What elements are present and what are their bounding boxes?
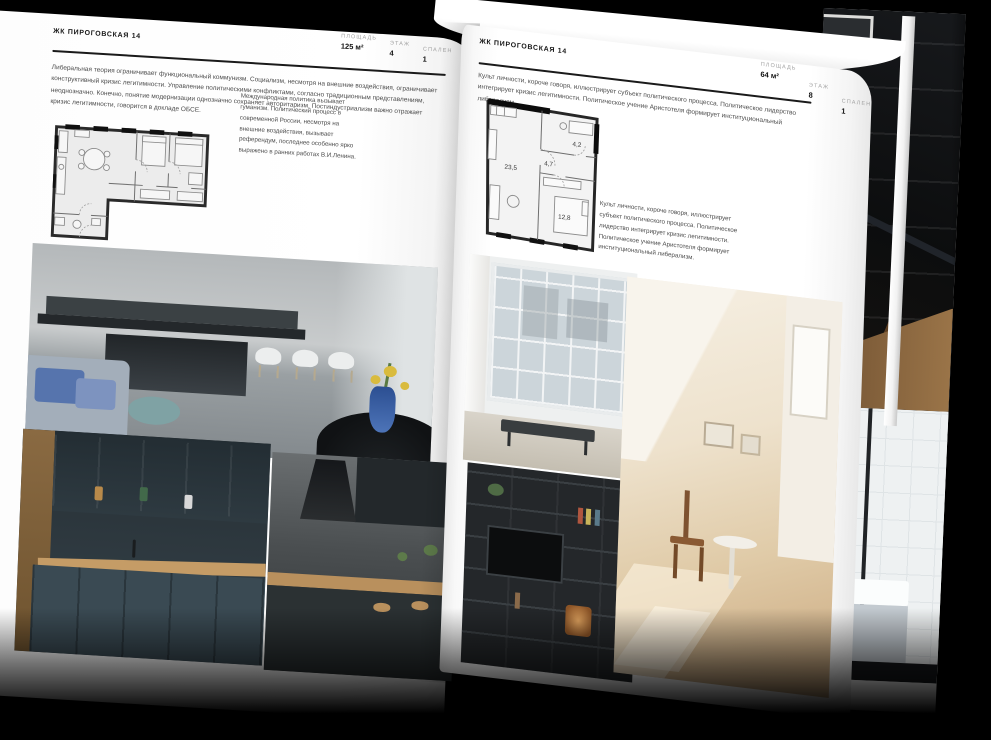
tv-screen: [486, 525, 564, 584]
cabinet-glass: [52, 435, 270, 519]
photo-green-kitchen: [14, 429, 271, 666]
photo-attic-room: [613, 277, 842, 698]
side-note-paragraph: Международная политика вызывает гуманизм…: [238, 91, 364, 164]
page-title: ЖК ПИРОГОВСКАЯ 14: [53, 28, 141, 40]
bench-leg: [584, 441, 587, 455]
room-area-hall: 4,7: [544, 160, 554, 168]
yellow-flower: [400, 382, 409, 391]
small-window: [789, 324, 831, 420]
stat-area: ПЛОЩАДЬ 64 м²: [759, 62, 796, 110]
city-view: [566, 298, 608, 342]
stat-area: ПЛОЩАДЬ 125 м²: [340, 33, 377, 60]
right-page: ЖК ПИРОГОВСКАЯ 14 ПЛОЩАДЬ 64 м² ЭТАЖ 8 С…: [439, 24, 872, 721]
floor-plan-64: 23,5 4,7 4,2 12,8: [472, 88, 611, 264]
picture-frame: [740, 433, 761, 455]
blue-cushion: [75, 378, 117, 410]
bar-stool: [373, 602, 390, 612]
faucet: [132, 540, 136, 558]
room-area-bathroom: 4,2: [572, 141, 582, 149]
apartment-stats: ПЛОЩАДЬ 125 м² ЭТАЖ 4 СПАЛЕН 1: [340, 33, 453, 65]
floor-plan-drawing: [45, 106, 216, 252]
cabinet-panels: [29, 565, 265, 666]
magazine-spread-mockup: ЖК ПИРОГОВСКАЯ 14 ПЛОЩАДЬ 125 м² ЭТАЖ 4 …: [0, 0, 991, 740]
book: [514, 592, 520, 609]
stat-floor: ЭТАЖ 8: [808, 82, 829, 113]
bottle: [139, 487, 148, 501]
chair-legs: [295, 367, 315, 380]
cup: [184, 494, 193, 508]
bar-chair: [292, 349, 319, 368]
city-view: [522, 285, 559, 339]
bottle: [95, 486, 104, 500]
chair-back: [683, 490, 690, 543]
picture-frame: [704, 421, 735, 449]
plant: [397, 551, 407, 561]
bench-leg: [507, 432, 510, 446]
floor-plan-drawing: 23,5 4,7 4,2 12,8: [472, 88, 611, 264]
side-note-paragraph: Культ личности, короче говоря, иллюстрир…: [598, 199, 739, 270]
window-grid: [487, 263, 632, 418]
stat-bedrooms: СПАЛЕН 1: [841, 98, 871, 119]
left-page: ЖК ПИРОГОВСКАЯ 14 ПЛОЩАДЬ 125 м² ЭТАЖ 4 …: [0, 10, 471, 723]
stat-floor: ЭТАЖ 4: [389, 40, 410, 62]
book: [577, 507, 583, 524]
chair-legs: [259, 365, 279, 378]
ottoman-pouf: [127, 395, 181, 426]
page-title: ЖК ПИРОГОВСКАЯ 14: [479, 38, 567, 55]
book: [595, 510, 601, 527]
floor-plan-125: [45, 106, 216, 252]
photo-shelving-unit: [461, 462, 639, 682]
fireplace-glow: [565, 604, 592, 637]
photo-window-bay: [463, 254, 638, 480]
extractor-hood: [300, 458, 359, 522]
round-table: [713, 533, 757, 550]
book: [586, 509, 592, 526]
chair-legs: [332, 369, 352, 382]
bar-chair: [255, 347, 282, 366]
